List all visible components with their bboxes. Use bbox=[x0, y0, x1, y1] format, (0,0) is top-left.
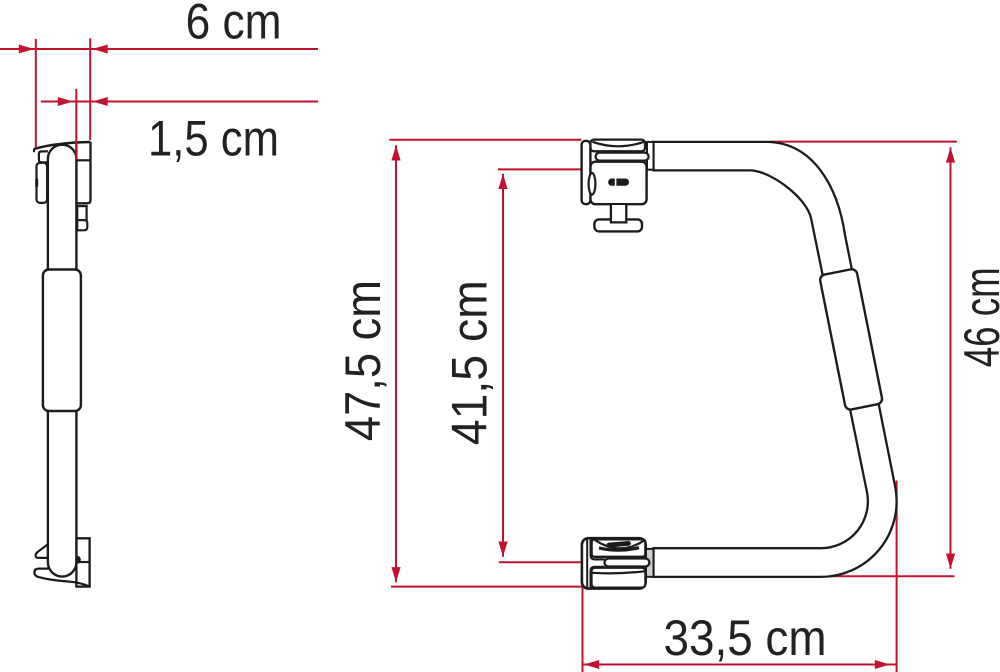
svg-text:47,5 cm: 47,5 cm bbox=[335, 280, 391, 441]
svg-text:33,5 cm: 33,5 cm bbox=[664, 610, 827, 666]
svg-text:46 cm: 46 cm bbox=[954, 267, 1000, 367]
svg-text:1,5 cm: 1,5 cm bbox=[148, 111, 279, 167]
svg-text:41,5 cm: 41,5 cm bbox=[442, 280, 498, 445]
svg-text:6 cm: 6 cm bbox=[186, 0, 282, 49]
